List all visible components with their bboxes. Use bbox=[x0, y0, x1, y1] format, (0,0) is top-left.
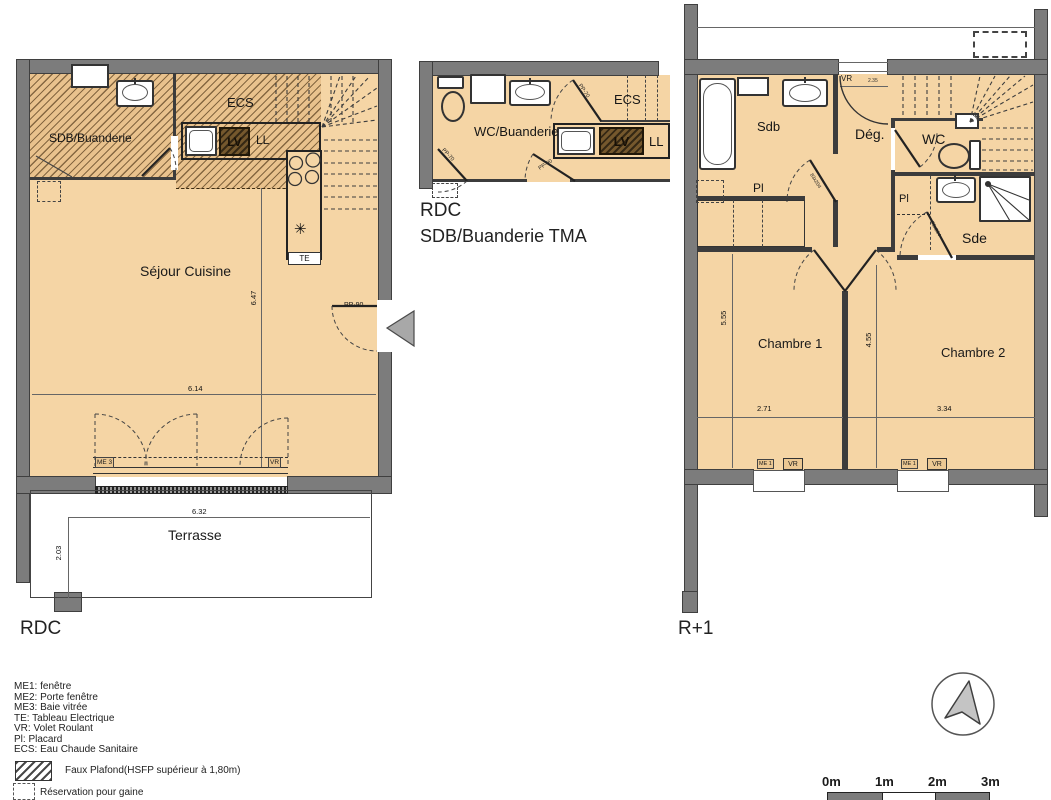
label-ecs: ECS bbox=[227, 95, 254, 110]
plan-rdc-title: RDC bbox=[20, 618, 61, 640]
me3-tag: ME 3 bbox=[95, 457, 114, 468]
tma-counter-sink-bowl bbox=[561, 131, 591, 151]
scale-label-2m: 2m bbox=[928, 774, 947, 789]
legend-item: ME3: Baie vitrée bbox=[14, 703, 374, 714]
closet-divider bbox=[930, 176, 931, 250]
dim-5-55: 5.55 bbox=[718, 303, 728, 333]
me1-tag: ME 1 bbox=[757, 459, 774, 469]
toilet-tank bbox=[969, 140, 981, 170]
wall bbox=[697, 247, 812, 252]
plan-tma-title-1: RDC bbox=[420, 200, 461, 222]
sde-sink-bowl bbox=[942, 182, 970, 198]
wall bbox=[420, 62, 658, 75]
wall bbox=[888, 60, 1047, 74]
door-opening bbox=[891, 128, 895, 170]
label-te: TE bbox=[299, 254, 309, 263]
dim-4-55: 4.55 bbox=[863, 325, 873, 355]
wall bbox=[29, 177, 176, 180]
gaine-reservation bbox=[696, 180, 724, 203]
door-opening bbox=[918, 255, 956, 260]
legend-faux-plafond-swatch bbox=[15, 761, 52, 781]
legend: ME1: fenêtre ME2: Porte fenêtre ME3: Bai… bbox=[14, 682, 374, 756]
dim-6-14: 6.14 bbox=[188, 384, 203, 393]
wall bbox=[17, 60, 29, 582]
vr-top-label: VR bbox=[841, 74, 852, 83]
wall bbox=[685, 5, 697, 612]
wall bbox=[685, 470, 753, 484]
column-box bbox=[737, 77, 769, 96]
scale-label-0m: 0m bbox=[822, 774, 841, 789]
kitchen-sink-bowl bbox=[189, 130, 213, 152]
room-label-terrasse: Terrasse bbox=[168, 527, 222, 543]
kitchen-strip bbox=[286, 150, 322, 260]
room-label-chambre2: Chambre 2 bbox=[941, 345, 1005, 360]
legend-reservation-label: Réservation pour gaine bbox=[40, 788, 143, 799]
bay-window-line bbox=[93, 457, 288, 458]
legend-reservation-swatch bbox=[13, 783, 35, 800]
scale-bar: 0m 1m 2m 3m bbox=[820, 772, 1020, 800]
dim-line bbox=[68, 517, 370, 518]
gaine-reservation bbox=[432, 183, 458, 198]
label-pl-right: Pl bbox=[899, 193, 909, 205]
scale-label-3m: 3m bbox=[981, 774, 1000, 789]
shower-tray bbox=[979, 176, 1031, 222]
door-opening bbox=[171, 136, 178, 170]
ecs-closet-line bbox=[645, 75, 646, 121]
vr-tag: VR bbox=[927, 458, 947, 470]
tap-icon bbox=[804, 77, 806, 83]
toilet-bowl bbox=[441, 91, 465, 122]
vr-tag: VR bbox=[268, 457, 281, 468]
wall bbox=[683, 592, 697, 612]
wall bbox=[420, 62, 432, 188]
legend-faux-plafond-label: Faux Plafond(HSFP supérieur à 1,80m) bbox=[65, 766, 240, 777]
dim-3-34: 3.34 bbox=[937, 404, 952, 413]
roof-reservation bbox=[973, 31, 1027, 58]
closet-divider bbox=[762, 200, 763, 247]
room-label-wc-buanderie: WC/Buanderie bbox=[474, 124, 559, 139]
label-pl-left: Pl bbox=[753, 181, 764, 195]
legend-item: VR: Volet Roulant bbox=[14, 724, 374, 735]
glazing-line bbox=[93, 467, 288, 468]
me1-tag: ME 1 bbox=[901, 459, 918, 469]
entry-door-label: PP-90 bbox=[344, 302, 363, 309]
dim-6-32: 6.32 bbox=[192, 507, 207, 516]
entry-door-opening bbox=[377, 300, 393, 352]
wall bbox=[432, 179, 527, 182]
sdb-sink-bowl bbox=[789, 84, 821, 102]
room-label-chambre1: Chambre 1 bbox=[758, 336, 822, 351]
room-label-wc: WC bbox=[922, 131, 945, 147]
tap-icon bbox=[954, 175, 956, 181]
label-lv: LV bbox=[227, 135, 241, 149]
sdb-sink-bowl bbox=[122, 84, 148, 101]
vr-window-line bbox=[838, 71, 888, 72]
void-edge-line bbox=[697, 27, 1035, 28]
window-box bbox=[71, 64, 109, 88]
wall bbox=[833, 74, 838, 154]
room-label-sdb: SDB/Buanderie bbox=[49, 131, 132, 145]
wall bbox=[685, 60, 838, 74]
room-label-deg: Dég. bbox=[855, 126, 885, 142]
dim-line bbox=[876, 265, 877, 468]
label-ll: LL bbox=[256, 133, 269, 147]
room-label-sejour: Séjour Cuisine bbox=[140, 263, 231, 279]
wall bbox=[833, 200, 838, 247]
toilet-tank bbox=[437, 76, 464, 89]
dim-2-71: 2.71 bbox=[757, 404, 772, 413]
dim-2-03: 2.03 bbox=[53, 538, 63, 568]
tma-sink-bowl bbox=[515, 84, 545, 100]
vr-tag: VR bbox=[783, 458, 803, 470]
wall bbox=[877, 247, 895, 252]
dishwasher-lv: LV bbox=[219, 127, 250, 156]
label-lv: LV bbox=[614, 134, 630, 149]
vr-window-line bbox=[838, 62, 888, 63]
room-label-sde: Sde bbox=[962, 230, 987, 246]
dim-line bbox=[840, 86, 888, 87]
scale-label-1m: 1m bbox=[875, 774, 894, 789]
glazing-line bbox=[93, 473, 288, 474]
label-ecs: ECS bbox=[614, 92, 641, 107]
gaine-reservation bbox=[37, 181, 61, 202]
bathtub-inner bbox=[703, 83, 732, 165]
plan-tma-title-2: SDB/Buanderie TMA bbox=[420, 226, 587, 247]
scale-bar-rule bbox=[827, 792, 990, 800]
dim-line bbox=[848, 417, 1035, 418]
dim-6-47: 6.47 bbox=[248, 283, 258, 313]
stair-window-box bbox=[955, 113, 979, 129]
closet-pl bbox=[697, 200, 805, 247]
tap-icon bbox=[529, 78, 531, 84]
plan-tma: ECS LV LL WC/Buanderie PP-70 PP-90 PP-70… bbox=[410, 50, 675, 260]
north-arrow-icon bbox=[925, 665, 1015, 750]
closet-divider bbox=[897, 214, 930, 215]
wall bbox=[949, 470, 1047, 484]
dim-line bbox=[68, 517, 69, 598]
wall bbox=[842, 291, 848, 470]
dim-line bbox=[32, 394, 376, 395]
plan-rdc: SDB/Buanderie ECS LV LL ✳ TE Séjour Cuis… bbox=[0, 0, 430, 660]
wall bbox=[379, 60, 391, 493]
floor-plan-sheet: SDB/Buanderie ECS LV LL ✳ TE Séjour Cuis… bbox=[0, 0, 1051, 800]
plan-r1: VR 2.35 Sdb Pl Dég. 83x204 bbox=[655, 0, 1051, 660]
te-box: TE bbox=[288, 252, 321, 265]
dim-line bbox=[697, 417, 843, 418]
window-opening bbox=[897, 470, 949, 492]
scale-seg bbox=[883, 793, 937, 800]
window-opening bbox=[753, 470, 805, 492]
washing-machine bbox=[470, 74, 506, 104]
tap-icon bbox=[134, 78, 136, 84]
dishwasher-lv: LV bbox=[599, 127, 644, 155]
scale-seg bbox=[936, 793, 989, 800]
dim-line bbox=[261, 188, 262, 468]
plan-r1-title: R+1 bbox=[678, 618, 713, 640]
vr-top-dim: 2.35 bbox=[868, 78, 878, 84]
room-label-sdb: Sdb bbox=[757, 119, 780, 134]
legend-item: ME1: fenêtre bbox=[14, 682, 374, 693]
dim-line bbox=[732, 254, 733, 468]
wall bbox=[805, 470, 897, 484]
scale-seg bbox=[828, 793, 883, 800]
cooktop-star-icon: ✳ bbox=[294, 220, 307, 238]
legend-item: ECS: Eau Chaude Sanitaire bbox=[14, 745, 374, 756]
closet-divider bbox=[733, 200, 734, 247]
wall bbox=[1035, 10, 1047, 516]
